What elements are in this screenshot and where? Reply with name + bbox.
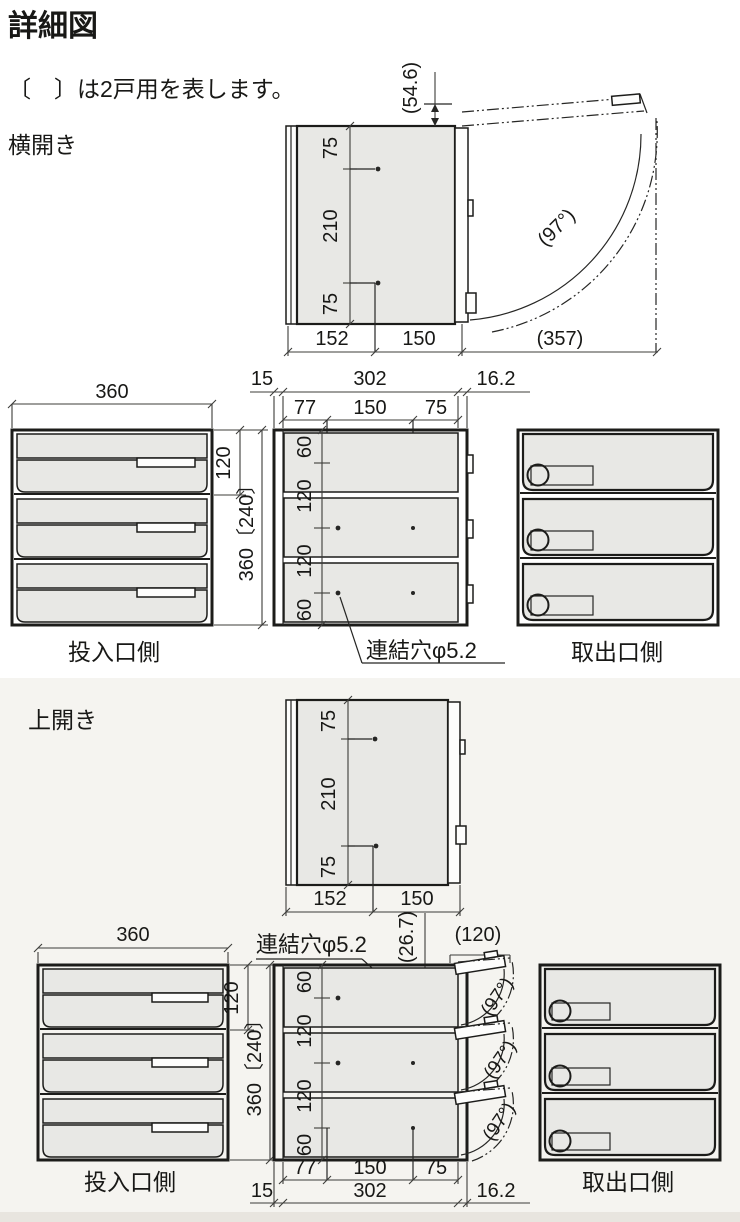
dim-150-mid: 150 [353, 397, 386, 419]
dim-75-bottom2: 75 [318, 856, 340, 878]
dim-15-bot: 15 [251, 1180, 273, 1202]
front-unit-2 [14, 499, 210, 559]
front2-unit-3 [43, 1099, 223, 1157]
dim-357: (357) [537, 328, 584, 350]
dim-60-d: 60 [294, 1134, 316, 1156]
dim-360-front: 360 [95, 381, 128, 403]
dim-120-d: 120 [294, 1079, 316, 1112]
dim-77-bot: 77 [294, 1157, 316, 1179]
dim-120-b: 120 [294, 544, 316, 577]
front2-unit-2 [40, 1034, 226, 1094]
dim-60-b: 60 [294, 599, 316, 621]
dim-15-mid: 15 [251, 368, 273, 390]
dim-60-a: 60 [294, 436, 316, 458]
front-unit-1 [14, 434, 210, 494]
dim-75-top2: 75 [318, 710, 340, 732]
rear-unit-1 [520, 434, 716, 493]
rear2-unit-2 [542, 1034, 718, 1093]
detail-drawing-page: 詳細図 〔 〕は2戸用を表します。 横開き (97°) (54.6) [0, 0, 740, 1222]
legend-note: 〔 〕は2戸用を表します。 [8, 76, 295, 102]
bottom-strip [0, 1212, 740, 1222]
joint-hole-label2: 連結穴φ5.2 [256, 932, 367, 957]
dim-150-2: 150 [400, 888, 433, 910]
rear-unit-2 [520, 499, 716, 558]
dim-150: 150 [402, 328, 435, 350]
dim-302-bot: 302 [353, 1180, 386, 1202]
dim-360-240-front2: 360〔240〕 [243, 1010, 266, 1117]
front2-unit-1 [40, 969, 226, 1029]
drawing-canvas: 詳細図 〔 〕は2戸用を表します。 横開き (97°) (54.6) [0, 0, 740, 1222]
rear2-unit-1 [542, 969, 718, 1028]
dim-75-bottom: 75 [320, 293, 342, 315]
dim-75-bot: 75 [425, 1157, 447, 1179]
dim-60-c: 60 [294, 971, 316, 993]
rear-view-top-open: 取出口側 [540, 965, 720, 1195]
top-open-plan-view: 75 210 75 152 150 [282, 696, 466, 916]
rear-unit-3 [523, 564, 713, 620]
dim-152-2: 152 [313, 888, 346, 910]
dim-360-240-front: 360〔240〕 [235, 475, 258, 582]
rear2-unit-3 [545, 1099, 715, 1155]
dim-120-open: (120) [455, 924, 502, 946]
dim-210-2: 210 [318, 777, 340, 810]
dim-26-7: (26.7) [396, 911, 418, 963]
dim-150-bot: 150 [353, 1157, 386, 1179]
dim-120-front2: 120 [221, 981, 243, 1014]
dim-120-a: 120 [294, 479, 316, 512]
dim-120-front: 120 [213, 446, 235, 479]
page-title: 詳細図 [8, 9, 98, 43]
inlet-side-label2: 投入口側 [84, 1169, 176, 1195]
section-label-side-open: 横開き [8, 132, 77, 158]
outlet-side-label: 取出口側 [571, 639, 663, 665]
dim-75-top: 75 [320, 137, 342, 159]
outlet-side-label2: 取出口側 [582, 1169, 674, 1195]
dim-16-2-bot: 16.2 [477, 1180, 516, 1202]
dim-302-mid: 302 [353, 368, 386, 390]
section-label-top-open: 上開き [28, 707, 97, 733]
dim-54-6-label: (54.6) [400, 62, 422, 114]
inlet-side-label: 投入口側 [68, 639, 160, 665]
dim-152: 152 [315, 328, 348, 350]
dim-210: 210 [320, 209, 342, 242]
joint-hole-label-mid: 連結穴φ5.2 [366, 638, 477, 663]
front-unit-3 [17, 564, 207, 622]
dim-360-front2: 360 [116, 924, 149, 946]
dim-16-2-mid: 16.2 [477, 368, 516, 390]
dim-75-mid: 75 [425, 397, 447, 419]
dim-77-mid: 77 [294, 397, 316, 419]
dim-120-c: 120 [294, 1014, 316, 1047]
